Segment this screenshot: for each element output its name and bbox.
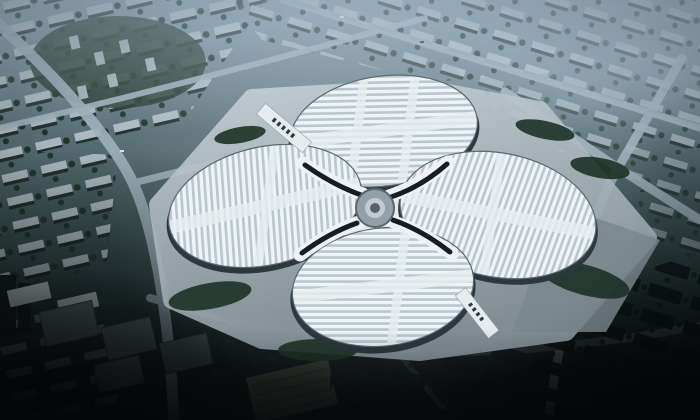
aerial-rendering-stage bbox=[0, 0, 700, 420]
vignette bbox=[0, 0, 700, 420]
scene-canvas bbox=[0, 0, 700, 420]
